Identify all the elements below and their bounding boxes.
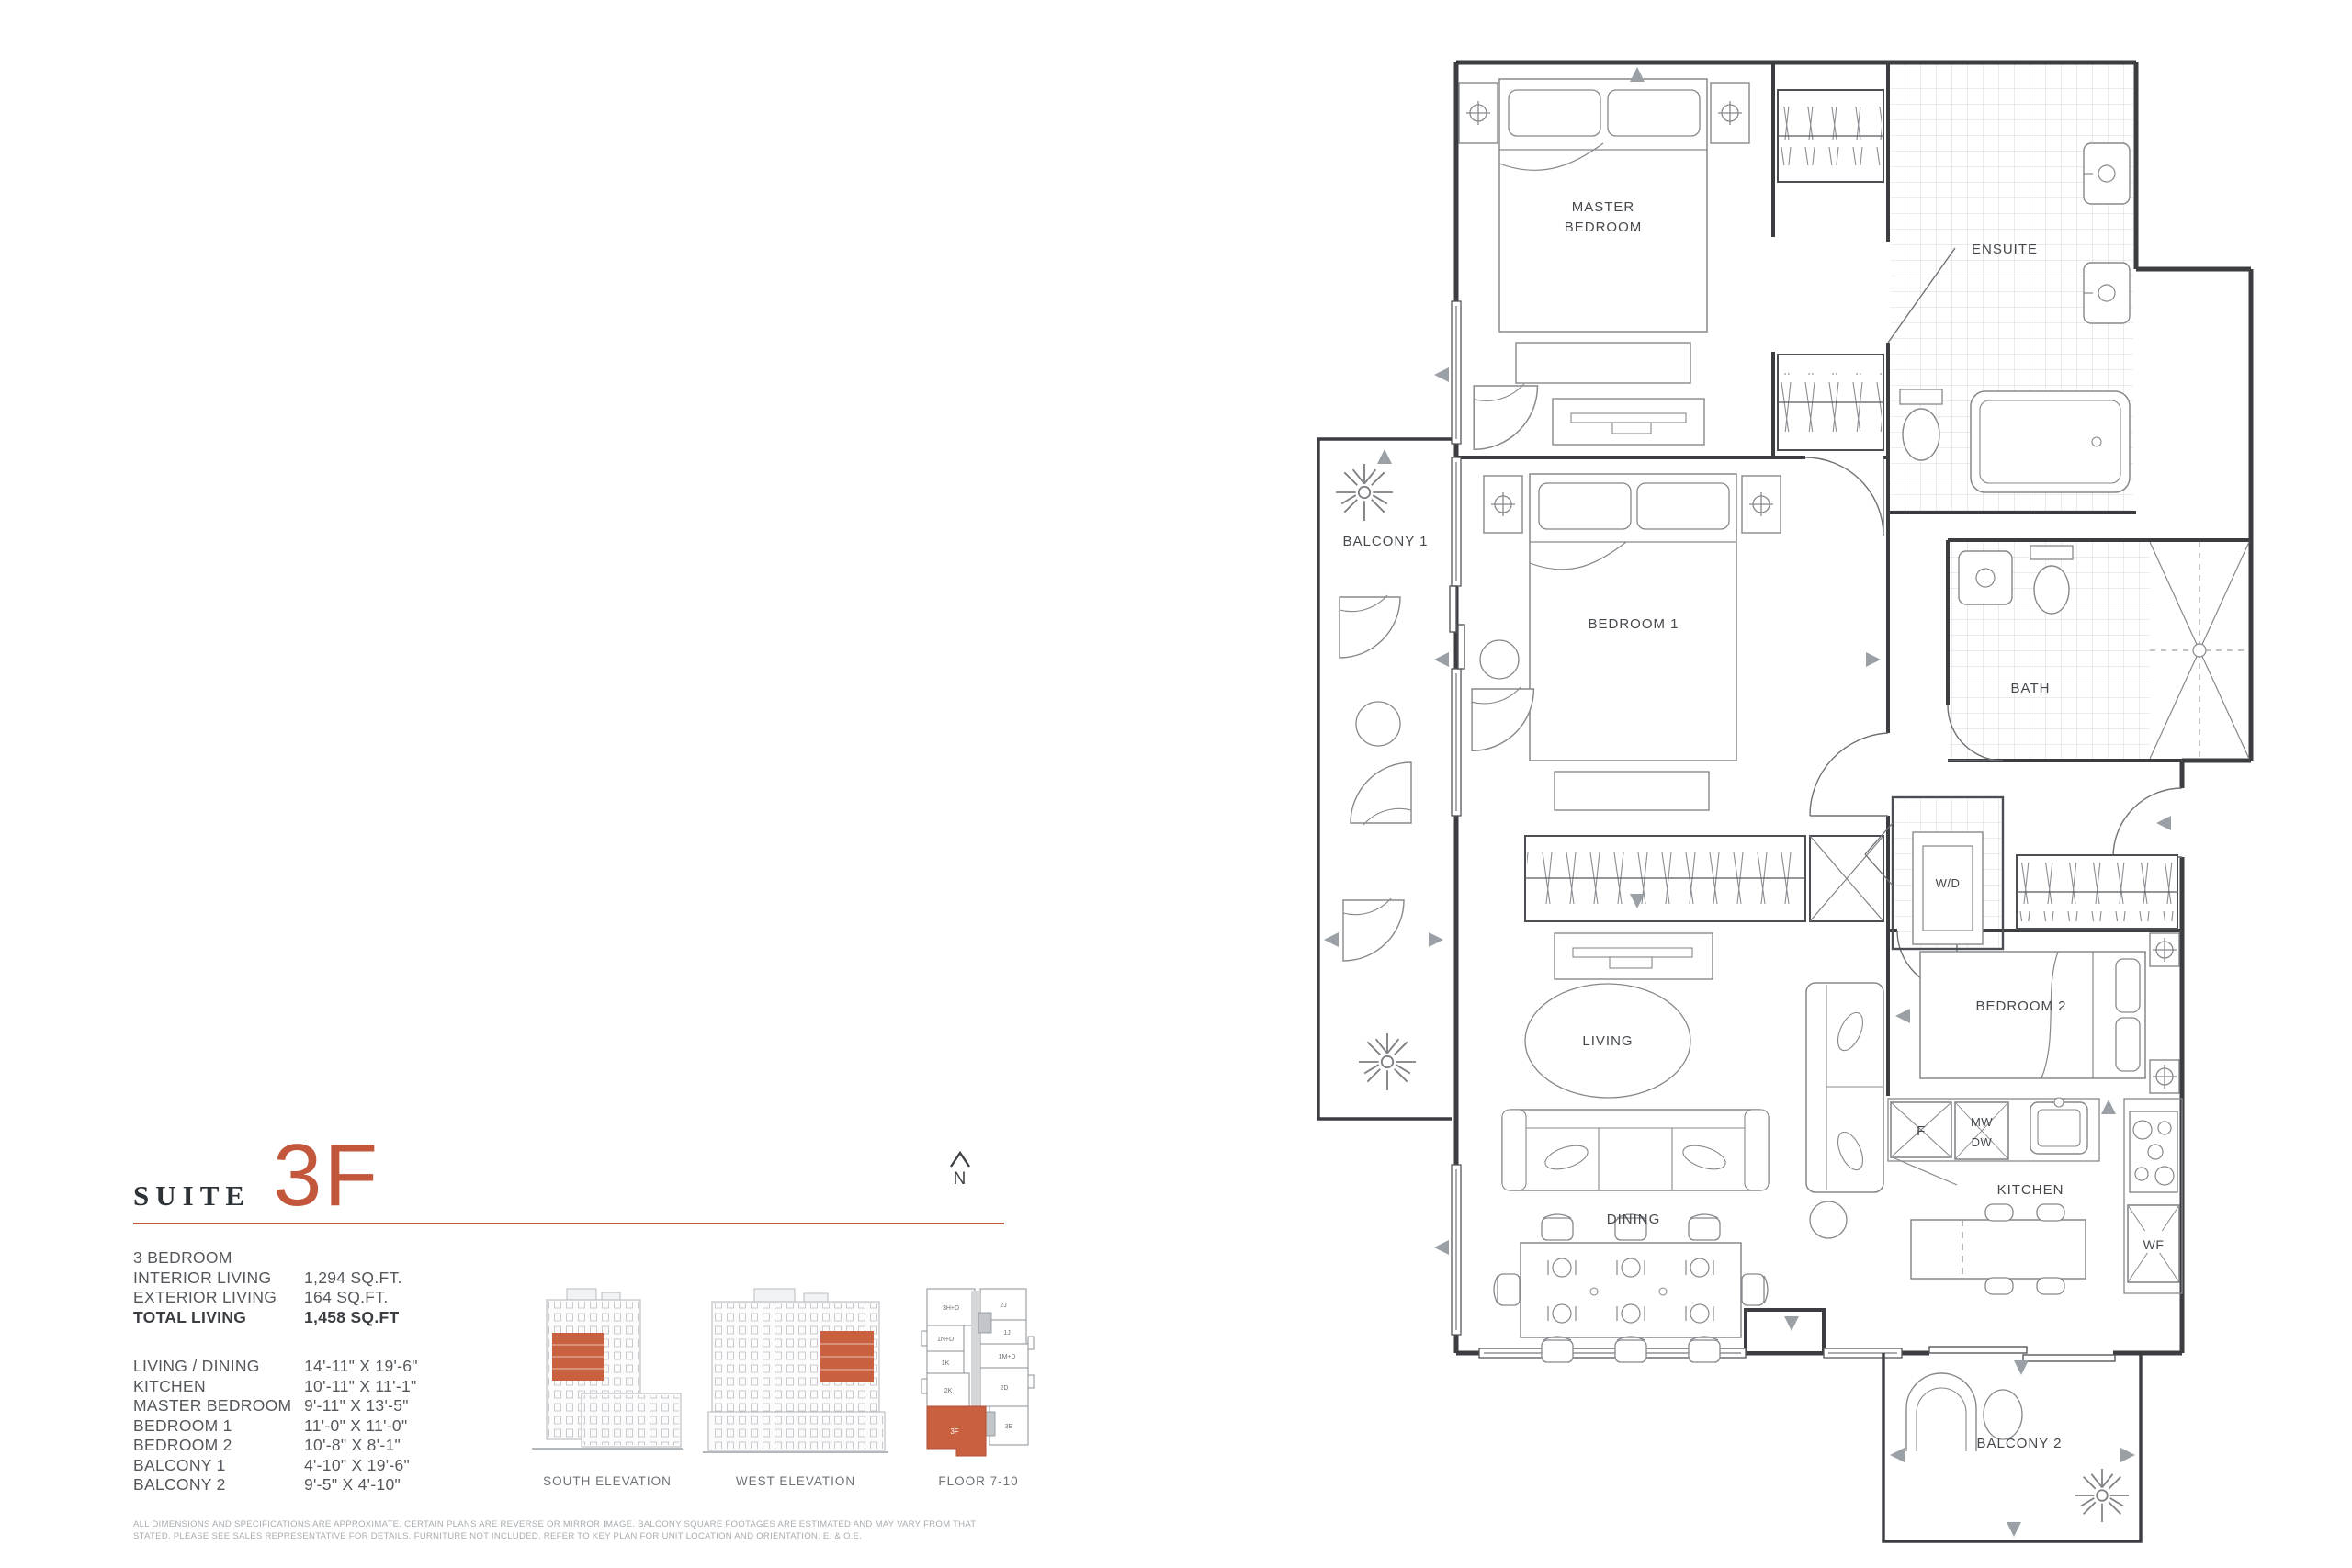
south-elevation-drawing [528,1285,686,1465]
keyplan-unit-label: 2D [1001,1385,1009,1392]
keyplan-unit-label: 1K [942,1360,950,1367]
suite-word: SUITE [133,1179,251,1213]
room-label-dining: DINING [1607,1212,1661,1227]
stove [2130,1111,2177,1192]
suite-number: 3F [273,1142,379,1211]
north-indicator: N [940,1149,980,1190]
fact-row: 3 BEDROOM [133,1248,402,1269]
floor-plan-drawing: W/D MASTER BEDROOM ENSUITE BATH BEDROOM … [1295,26,2262,1562]
room-label-bedroom1: BEDROOM 1 [1588,616,1679,632]
info-panel: SUITE 3F N 3 BEDROOM INTERIOR LIVING1,29… [133,1142,1004,1568]
living-room [1502,933,1883,1238]
room-label-kitchen: KITCHEN [1997,1182,2064,1198]
disclaimer-text: ALL DIMENSIONS AND SPECIFICATIONS ARE AP… [133,1518,995,1542]
room-label-ensuite: ENSUITE [1972,242,2038,257]
west-elevation-drawing [701,1285,890,1465]
north-label: N [940,1169,980,1190]
mini-figures: SOUTH ELEVATION WEST ELEVATION [133,1285,1004,1515]
balcony-1: BALCONY 1 [1318,439,1452,1119]
floor-plan: W/D MASTER BEDROOM ENSUITE BATH BEDROOM … [1295,26,2262,1562]
appliance-label-wf: WF [2143,1237,2165,1252]
room-label-master-2: BEDROOM [1565,220,1643,235]
keyplan-unit-label: 1J [1003,1330,1010,1337]
keyplan-unit-label: 1N+D [937,1337,954,1343]
appliance-label-mw: MW [1971,1115,1993,1129]
keyplan-unit-label: 3E [1005,1424,1013,1430]
room-label-balcony1: BALCONY 1 [1343,534,1429,549]
brochure-page: { "suite": { "word": "SUITE", "number": … [0,0,2352,1568]
keyplan-unit-label: 2K [944,1388,953,1394]
room-label-living: LIVING [1582,1033,1633,1049]
room-label-bedroom2: BEDROOM 2 [1975,998,2066,1014]
appliance-label-f: F [1917,1123,1926,1139]
dining-area [1494,1214,1768,1362]
keyplan-unit-label: 2J [1000,1303,1006,1309]
north-arrow-icon [944,1149,976,1169]
kitchen-island [1911,1220,2086,1279]
keyplan-caption: FLOOR 7-10 [920,1474,1037,1488]
room-label-bath: BATH [2011,681,2051,696]
keyplan-unit-label: 3H+D [943,1305,959,1312]
keyplan-drawing: 3H+D 2J 1N+D 1J 1M+D 1K 2K 2D 3E 3F [920,1285,1037,1465]
room-label-master-1: MASTER [1572,199,1635,215]
west-elevation-caption: WEST ELEVATION [701,1474,890,1488]
room-label-balcony2: BALCONY 2 [1977,1436,2063,1451]
suite-heading: SUITE 3F [133,1142,379,1213]
bedroom-1 [1480,474,1781,810]
keyplan-unit-label: 1M+D [999,1354,1016,1360]
accent-rule [133,1223,1004,1224]
room-label-wd: W/D [1936,876,1961,890]
west-elevation-figure: WEST ELEVATION [701,1285,890,1488]
keyplan-figure: 3H+D 2J 1N+D 1J 1M+D 1K 2K 2D 3E 3F FLOO… [920,1285,1037,1488]
keyplan-unit-label-3f: 3F [950,1427,958,1436]
appliance-label-dw: DW [1972,1135,1993,1149]
balcony-2: BALCONY 2 [1883,1353,2141,1541]
south-elevation-figure: SOUTH ELEVATION [528,1285,686,1488]
south-elevation-caption: SOUTH ELEVATION [528,1474,686,1488]
